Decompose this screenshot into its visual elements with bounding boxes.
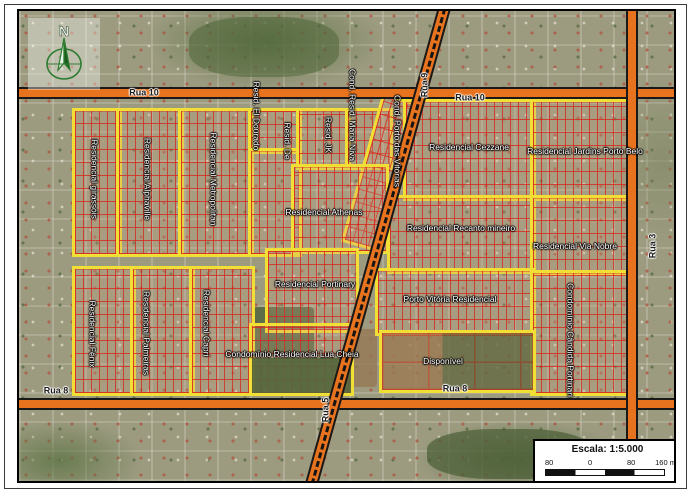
compass-icon: N: [28, 18, 100, 90]
label-cezzane: Residencial Cezzane: [429, 143, 509, 152]
north-label: N: [59, 23, 69, 39]
scale-box: Escala: 1:5.000 80 0 80 160 m: [533, 439, 676, 483]
map-frame: Rua 10 Rua 10 Rua 8 Rua 8 Rua 9 Rua 5 Ru…: [17, 9, 676, 483]
label-rua8-left: Rua 8: [44, 387, 69, 396]
label-palmeiras: Residencial Palmeiras: [142, 291, 151, 375]
label-metropolitan: Residencial Metropolitan: [209, 132, 218, 225]
scale-tick: 160 m: [655, 458, 676, 467]
label-alphaville: Residencial Alphaville: [143, 138, 152, 220]
label-recanto-mineiro: Residencial Recanto mineiro: [407, 224, 515, 233]
label-rua9: Rua 9: [421, 73, 430, 98]
label-rua3: Rua 3: [649, 234, 658, 259]
block-via-nobre: [530, 195, 632, 276]
block-portinary: [265, 248, 359, 333]
label-girassois: Residencial girassóis: [90, 139, 99, 219]
road-rua-8: [19, 398, 674, 410]
scale-tick: 0: [588, 458, 592, 467]
label-jk: Resid. JK: [324, 117, 333, 153]
label-fenix: Residencial Fênix: [88, 300, 97, 367]
label-rua5: Rua 5: [322, 398, 331, 423]
label-maria-niva: Cond. Resid. Maria Niva: [348, 69, 357, 161]
label-rua10-left: Rua 10: [129, 89, 159, 98]
block-palmeiras: [130, 266, 195, 396]
block-fenix: [72, 266, 136, 396]
scale-label: Escala:: [572, 444, 607, 455]
label-capri: Residencial Capri: [202, 290, 211, 357]
map-sheet: Rua 10 Rua 10 Rua 8 Rua 8 Rua 9 Rua 5 Ru…: [0, 0, 691, 493]
label-disponivel: Disponível: [423, 357, 463, 366]
label-rua8-right: Rua 8: [443, 385, 468, 394]
label-athenas: Residencial Athenas: [285, 208, 362, 217]
north-arrow: N: [28, 18, 100, 90]
label-via-nobre: Residencial Via Nobre: [533, 242, 617, 251]
block-candida-portinari: [530, 270, 632, 396]
road-rua-3: [626, 11, 638, 481]
block-capri: [189, 266, 255, 396]
label-porto-vitoria: Porto Vitória Residencial: [404, 295, 497, 304]
scale-ratio: 1:5.000: [609, 444, 643, 455]
label-el-dourado: Resid. El Dourado: [252, 82, 261, 151]
scale-ticks: 80 0 80 160 m: [541, 458, 676, 467]
label-lua-cheia: Condomínio Residencial Lua Cheia: [225, 350, 358, 359]
scale-title: Escala: 1:5.000: [535, 444, 676, 455]
park-patch-top: [189, 17, 339, 77]
label-portinary: Residencial Portinary: [275, 280, 355, 289]
label-porto-das-vitorias: Cond. Porto das Vitórias: [393, 95, 402, 187]
block-recanto-mineiro: [387, 195, 536, 274]
scale-tick: 80: [545, 458, 553, 467]
scale-tick: 80: [627, 458, 635, 467]
label-rua10-right: Rua 10: [455, 94, 485, 103]
scale-bar: [545, 469, 665, 476]
label-jardins-porto-belo: Residencial Jardins Porto Belo: [527, 147, 643, 156]
label-candida-portinari: Condomínio Cândida Portinari: [566, 283, 575, 397]
label-resid-de: Resid. De: [283, 122, 292, 159]
